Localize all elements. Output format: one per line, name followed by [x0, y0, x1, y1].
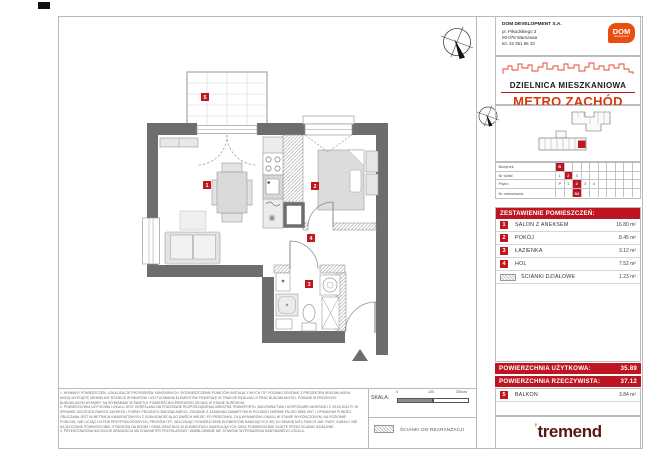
usable-area-value: 35.89 [621, 365, 637, 372]
unit-cell [615, 180, 624, 189]
unit-cell [632, 189, 641, 198]
balcony-number-badge: 5 [500, 391, 508, 399]
dom-development-logo: DOM development [608, 23, 635, 43]
unit-table-row: BudynekB [496, 163, 640, 172]
unit-cell [632, 180, 641, 189]
unit-cell [581, 172, 590, 181]
room-area: 3.12 m² [619, 248, 636, 254]
partition-walls-swatch [500, 274, 516, 281]
unit-table-row-label: Nr mieszkania [496, 189, 555, 198]
actual-area-value: 37.12 [621, 378, 637, 385]
estate-name: DZIELNICA MIESZKANIOWA [496, 81, 640, 90]
unit-table-row: Nr mieszkania54 [496, 189, 640, 198]
unit-cell [589, 163, 598, 172]
unit-cell-selected: 2 [572, 180, 581, 189]
unit-cell [632, 163, 641, 172]
unit-table-row-label: Piętro [496, 180, 555, 189]
developer-address-box: DOM DEVELOPMENT S.A. pl. Piłsudskiego 3 … [495, 16, 641, 56]
room-name: POKÓJ [515, 235, 619, 241]
room-name: ŁAZIENKA [515, 248, 619, 254]
unit-table-row: PiętroP1234 [496, 180, 640, 189]
floor-plan-sheet: 5 1 2 4 3 DOM DEVELOPMENT S.A. pl. Piłsu… [0, 0, 650, 460]
rearrange-walls-label: ŚCIANKI DO REARANŻACJI [400, 427, 464, 432]
unit-cell [606, 180, 615, 189]
note-item: 2. POWIERZCHNIA UŻYTKOWA LOKALU JEST OKR… [60, 405, 358, 429]
unit-location-table: BudynekBNr klatki123PiętroP1234Nr mieszk… [495, 162, 641, 199]
unit-cell [598, 189, 607, 198]
unit-cell [598, 180, 607, 189]
unit-cell [615, 163, 624, 172]
scale-tick-100: 100 [428, 390, 434, 394]
room-row: 3ŁAZIENKA3.12 m² [496, 245, 640, 258]
room-name: ŚCIANKI DZIAŁOWE [521, 274, 619, 280]
unit-cell [589, 172, 598, 181]
unit-cell [606, 172, 615, 181]
unit-cell [564, 163, 573, 172]
unit-cell [598, 172, 607, 181]
balcony-row-box: 5 BALKON 3.84 m² [495, 388, 641, 416]
architect-logo-box: ’tremend [495, 416, 641, 449]
project-brand-box: DZIELNICA MIESZKANIOWA METRO ZACHÓD [495, 56, 641, 105]
unit-cell: 4 [589, 180, 598, 189]
unit-cell [615, 189, 624, 198]
actual-area-label: POWIERZCHNIA RZECZYWISTA: [499, 378, 600, 385]
room-area: 8.45 m² [619, 235, 636, 241]
room-row: ŚCIANKI DZIAŁOWE1.23 m² [496, 271, 640, 284]
scale-label: SKALA: [371, 395, 389, 401]
panel-divider [476, 16, 477, 449]
tremend-logo: ’tremend [534, 422, 601, 442]
rearrange-walls-swatch [374, 425, 394, 433]
footer-divider [58, 388, 476, 389]
legend-divider [368, 417, 476, 418]
legal-notes: 1. WYMIARY POMIESZCZEŃ, LOKALIZACJE PRZY… [60, 391, 358, 434]
unit-table-row-label: Budynek [496, 163, 555, 172]
skyline-icon [501, 60, 635, 75]
balcony-name: BALKON [515, 392, 619, 398]
balcony-area: 3.84 m² [619, 392, 636, 398]
unit-cell [606, 163, 615, 172]
room-number-badge: 3 [500, 247, 508, 255]
unit-cell-selected: B [555, 163, 564, 172]
room-number-badge: 4 [500, 260, 508, 268]
unit-cell-selected: 2 [564, 172, 573, 181]
balcony-row: 5 BALKON 3.84 m² [496, 389, 640, 402]
unit-cell [623, 189, 632, 198]
scale-divider [368, 388, 369, 449]
room-row: 4HOL7.52 m² [496, 258, 640, 271]
usable-area-bar: POWIERZCHNIA UŻYTKOWA: 35.89 [495, 363, 641, 374]
unit-cell: 1 [564, 180, 573, 189]
room-area: 16.80 m² [616, 222, 636, 228]
room-area: 1.23 m² [619, 274, 636, 280]
room-schedule-title: ZESTAWIENIE POMIESZCZEŃ: [496, 208, 640, 219]
unit-cell: 1 [555, 172, 564, 181]
unit-cell [615, 172, 624, 181]
usable-area-label: POWIERZCHNIA UŻYTKOWA: [499, 365, 591, 372]
scale-bar-dark [397, 398, 433, 403]
scale-tick-200: 200cm [456, 390, 467, 394]
room-name: SALON Z ANEKSEM [515, 222, 616, 228]
unit-cell-selected: 54 [572, 189, 581, 198]
unit-cell: P [555, 180, 564, 189]
unit-cell [572, 163, 581, 172]
crop-mark [38, 2, 50, 9]
unit-cell [564, 189, 573, 198]
unit-cell [581, 163, 590, 172]
logo-subtext: development [614, 35, 629, 38]
unit-cell [623, 163, 632, 172]
actual-area-bar: POWIERZCHNIA RZECZYWISTA: 37.12 [495, 376, 641, 387]
unit-cell: 3 [572, 172, 581, 181]
logo-text: DOM [613, 28, 631, 35]
note-item: 3. PRZEDSTAWIONA NA RZUCIE ARANŻACJA MA … [60, 429, 358, 434]
site-plan-box [495, 105, 641, 162]
brand-rule [501, 92, 635, 94]
unit-table-row-label: Nr klatki [496, 172, 555, 181]
unit-cell [589, 189, 598, 198]
room-schedule-box: ZESTAWIENIE POMIESZCZEŃ: 1SALON Z ANEKSE… [495, 207, 641, 362]
note-item: 1. WYMIARY POMIESZCZEŃ, LOKALIZACJE PRZY… [60, 391, 358, 405]
unit-cell [623, 172, 632, 181]
unit-cell [555, 189, 564, 198]
room-area: 7.52 m² [619, 261, 636, 267]
room-number-badge: 2 [500, 234, 508, 242]
unit-cell [598, 163, 607, 172]
scale-tick-0: 0 [396, 390, 398, 394]
room-name: HOL [515, 261, 619, 267]
unit-cell: 3 [581, 180, 590, 189]
unit-table-row: Nr klatki123 [496, 172, 640, 181]
room-number-badge: 1 [500, 221, 508, 229]
unit-cell [581, 189, 590, 198]
unit-cell [632, 172, 641, 181]
room-row: 1SALON Z ANEKSEM16.80 m² [496, 219, 640, 232]
unit-cell [606, 189, 615, 198]
room-row: 2POKÓJ8.45 m² [496, 232, 640, 245]
unit-cell [623, 180, 632, 189]
scale-bar-light [433, 398, 469, 403]
